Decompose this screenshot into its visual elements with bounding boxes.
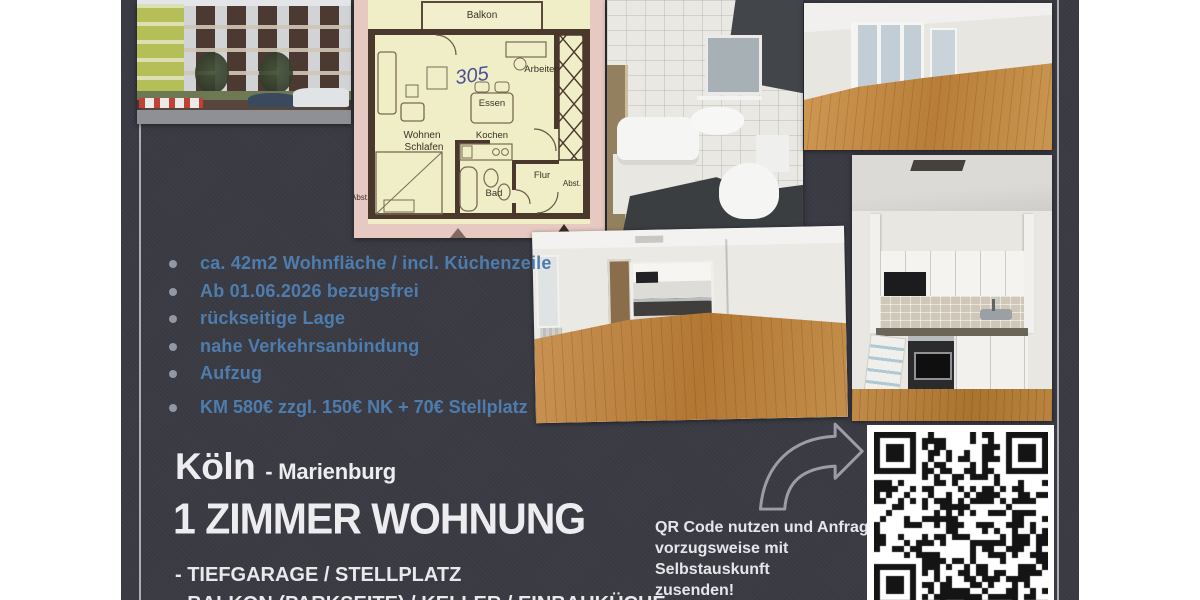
- sink: [691, 107, 744, 135]
- wall-corner: [726, 240, 730, 324]
- plan-label-abst-right: Abst.: [563, 179, 581, 188]
- floor-planks: [852, 389, 1052, 421]
- bottom-feature-lines: - TIEFGARAGE / STELLPLATZ - BALKON (PARK…: [175, 561, 666, 600]
- plan-label-arbeiten: Arbeiten: [524, 64, 559, 75]
- tree: [195, 52, 229, 94]
- plan-label-balkon: Balkon: [467, 10, 498, 21]
- wall-post: [1024, 214, 1034, 334]
- plan-label-essen: Essen: [479, 98, 505, 109]
- feature-line: - BALKON (PARKSEITE) / KELLER / EINBAUKÜ…: [175, 590, 666, 600]
- toilet: [719, 163, 780, 219]
- city-name: Köln: [175, 446, 255, 487]
- plan-label-bad: Bad: [486, 188, 503, 199]
- poster-card: Balkon 305 Arbeiten Essen Wohnen Schlafe…: [121, 0, 1079, 600]
- bullet-item: nahe Verkehrsanbindung: [167, 333, 552, 361]
- tree: [259, 52, 293, 94]
- wall-post: [870, 214, 880, 334]
- plan-label-kochen: Kochen: [476, 130, 508, 141]
- green-building: [137, 4, 184, 98]
- right-border-line: [1057, 0, 1059, 600]
- feature-bullet-list: ca. 42m2 Wohnfläche / incl. Küchenzeile …: [167, 250, 552, 388]
- kitchenette-microwave: [636, 272, 658, 284]
- building-exterior-photo: [137, 0, 351, 124]
- ceiling-vent: [635, 235, 663, 243]
- plan-label-schlafen: Schlafen: [405, 142, 444, 153]
- plan-label-wohnen: Wohnen: [403, 130, 440, 141]
- ceiling-beam: [910, 160, 965, 171]
- qr-code: [867, 425, 1054, 600]
- district-name: - Marienburg: [265, 459, 396, 484]
- plan-label-flur: Flur: [534, 170, 550, 181]
- rent-price-line: KM 580€ zzgl. 150€ NK + 70€ Stellplatz: [167, 397, 528, 418]
- location-heading: Köln- Marienburg: [175, 446, 396, 488]
- parked-car: [248, 93, 297, 107]
- bullet-item: Aufzug: [167, 360, 552, 388]
- feature-line: - TIEFGARAGE / STELLPLATZ: [175, 561, 666, 590]
- floor-planks: [532, 226, 848, 423]
- ceiling: [804, 3, 1052, 32]
- parked-van: [293, 88, 349, 107]
- living-room-photo-main: [532, 226, 848, 423]
- living-room-photo-top: [804, 3, 1052, 150]
- room-door: [607, 259, 631, 326]
- bullet-item: Ab 01.06.2026 bezugsfrei: [167, 278, 552, 306]
- lower-cabinets: [956, 336, 1028, 395]
- mirror: [705, 35, 762, 95]
- oven-window: [914, 352, 952, 380]
- kitchen-photo: [852, 155, 1052, 421]
- street: [137, 110, 351, 124]
- bathtub: [617, 117, 699, 166]
- countertop: [876, 328, 1028, 336]
- shelf: [697, 96, 762, 100]
- plan-label-abst-left: Abst.: [354, 193, 369, 202]
- curved-arrow-icon: [753, 420, 865, 516]
- bullet-item: rückseitige Lage: [167, 305, 552, 333]
- kitchenette-counter: [633, 297, 711, 316]
- barrier-fence: [139, 98, 203, 108]
- qr-code-pattern: [874, 432, 1048, 600]
- kitchen-sink: [980, 309, 1012, 320]
- apartment-headline: 1 ZIMMER WOHNUNG: [173, 494, 585, 544]
- bullet-item: ca. 42m2 Wohnfläche / incl. Küchenzeile: [167, 250, 552, 278]
- faucet: [992, 299, 995, 311]
- floor-plan: Balkon 305 Arbeiten Essen Wohnen Schlafe…: [354, 0, 605, 238]
- poster-page: { "poster": { "colors": { "background": …: [0, 0, 1200, 600]
- bathroom-photo: [607, 0, 803, 233]
